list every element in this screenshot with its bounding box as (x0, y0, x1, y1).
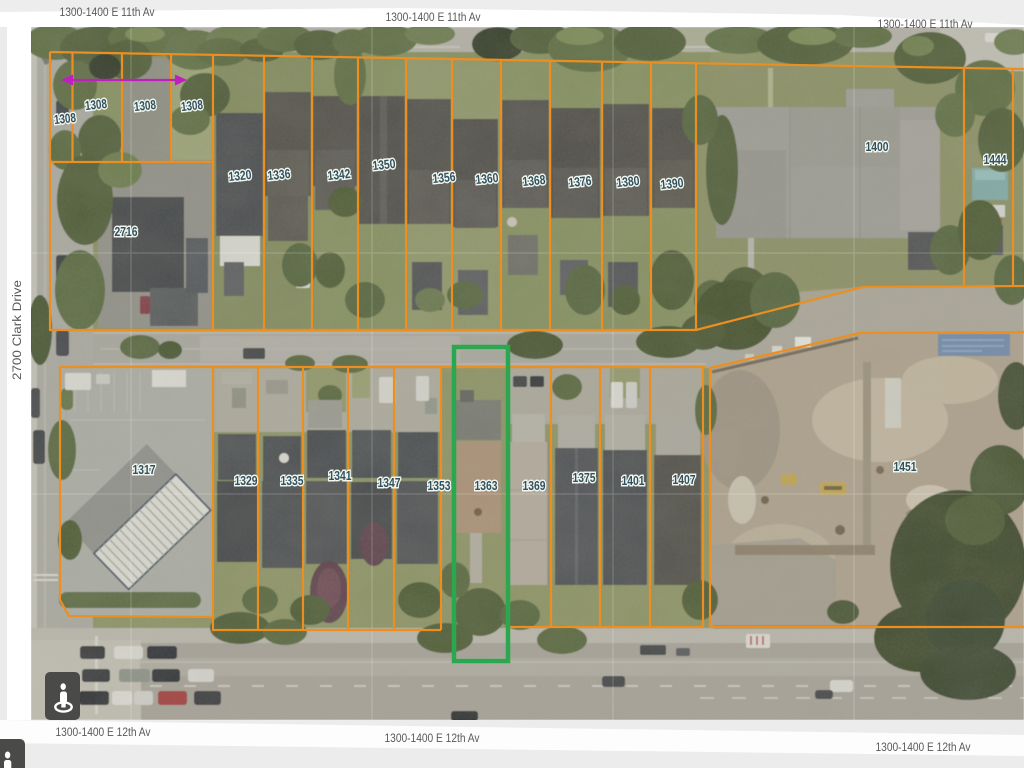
svg-text:1335: 1335 (281, 473, 304, 488)
svg-text:1380: 1380 (616, 173, 640, 190)
svg-text:1376: 1376 (568, 173, 592, 190)
svg-text:1308: 1308 (133, 97, 156, 114)
svg-text:1390: 1390 (660, 175, 684, 192)
svg-text:1368: 1368 (522, 172, 546, 189)
svg-text:1451: 1451 (894, 459, 917, 474)
svg-text:1300-1400 E 12th Av: 1300-1400 E 12th Av (876, 742, 971, 754)
svg-text:1300-1400 E 11th Av: 1300-1400 E 11th Av (60, 7, 155, 19)
svg-text:1317: 1317 (133, 462, 156, 477)
svg-text:1356: 1356 (432, 169, 456, 186)
svg-text:1336: 1336 (267, 166, 291, 183)
svg-text:1363: 1363 (475, 478, 498, 493)
svg-text:1308: 1308 (84, 96, 107, 113)
svg-text:1308: 1308 (53, 110, 76, 127)
svg-text:1342: 1342 (327, 166, 351, 183)
svg-text:1369: 1369 (523, 478, 546, 493)
svg-text:1300-1400 E 11th Av: 1300-1400 E 11th Av (878, 19, 973, 31)
svg-text:1347: 1347 (378, 475, 401, 490)
svg-text:1300-1400 E 11th Av: 1300-1400 E 11th Av (386, 12, 481, 24)
svg-text:1308: 1308 (180, 97, 203, 114)
svg-text:1444: 1444 (984, 152, 1008, 167)
svg-text:1320: 1320 (228, 167, 252, 184)
svg-text:1300-1400 E 12th Av: 1300-1400 E 12th Av (385, 733, 480, 745)
svg-text:2716: 2716 (115, 224, 138, 239)
svg-text:1341: 1341 (329, 468, 352, 483)
svg-text:1300-1400 E 12th Av: 1300-1400 E 12th Av (56, 727, 151, 739)
svg-text:1407: 1407 (673, 472, 696, 487)
svg-text:1401: 1401 (622, 473, 645, 488)
svg-text:1350: 1350 (372, 156, 396, 173)
svg-text:2700 Clark Drive: 2700 Clark Drive (12, 280, 24, 380)
svg-text:1329: 1329 (235, 473, 258, 488)
svg-text:1400: 1400 (866, 139, 889, 154)
svg-text:1353: 1353 (428, 478, 451, 493)
svg-text:1375: 1375 (573, 470, 596, 485)
svg-text:1360: 1360 (475, 170, 499, 187)
